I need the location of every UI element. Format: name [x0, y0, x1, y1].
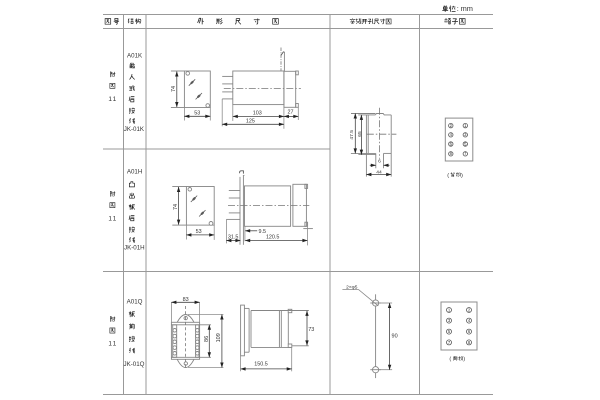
svg-text:A01H: A01H [127, 168, 142, 175]
svg-text:A01Q: A01Q [127, 298, 143, 305]
svg-text:73: 73 [308, 327, 314, 333]
svg-text:JK-01H: JK-01H [124, 245, 145, 252]
svg-text:9.5: 9.5 [259, 229, 267, 235]
svg-text:65: 65 [357, 131, 363, 137]
svg-text:44: 44 [376, 169, 382, 175]
svg-text:103: 103 [253, 111, 262, 117]
svg-text:): ) [461, 173, 463, 179]
svg-text:83: 83 [183, 297, 189, 303]
svg-text:11: 11 [108, 216, 117, 223]
svg-text:mm: mm [461, 4, 473, 13]
svg-text:6: 6 [378, 159, 381, 165]
svg-text:53: 53 [196, 229, 202, 235]
svg-text:11: 11 [108, 340, 117, 347]
svg-text:(: ( [449, 357, 451, 363]
svg-text:150.5: 150.5 [254, 362, 268, 368]
svg-text:JK-01Q: JK-01Q [124, 361, 145, 368]
svg-text:74: 74 [171, 86, 177, 92]
svg-text:JK-01K: JK-01K [124, 126, 145, 133]
svg-text:2×φ5: 2×φ5 [346, 284, 358, 290]
svg-text:27: 27 [288, 110, 294, 116]
svg-text:11: 11 [108, 96, 117, 103]
svg-text:): ) [463, 357, 465, 363]
svg-text:31.5: 31.5 [228, 235, 239, 241]
svg-text:A01K: A01K [127, 52, 143, 59]
svg-text:120.5: 120.5 [266, 235, 280, 241]
svg-text:74: 74 [173, 204, 179, 210]
svg-text::: : [457, 4, 459, 13]
svg-text:(: ( [447, 173, 449, 179]
svg-text:109: 109 [216, 333, 222, 342]
svg-text:53: 53 [194, 110, 200, 116]
svg-text:125: 125 [246, 119, 255, 125]
svg-text:47.5: 47.5 [349, 130, 355, 140]
svg-text:86: 86 [204, 336, 210, 342]
svg-text:90: 90 [392, 333, 398, 339]
